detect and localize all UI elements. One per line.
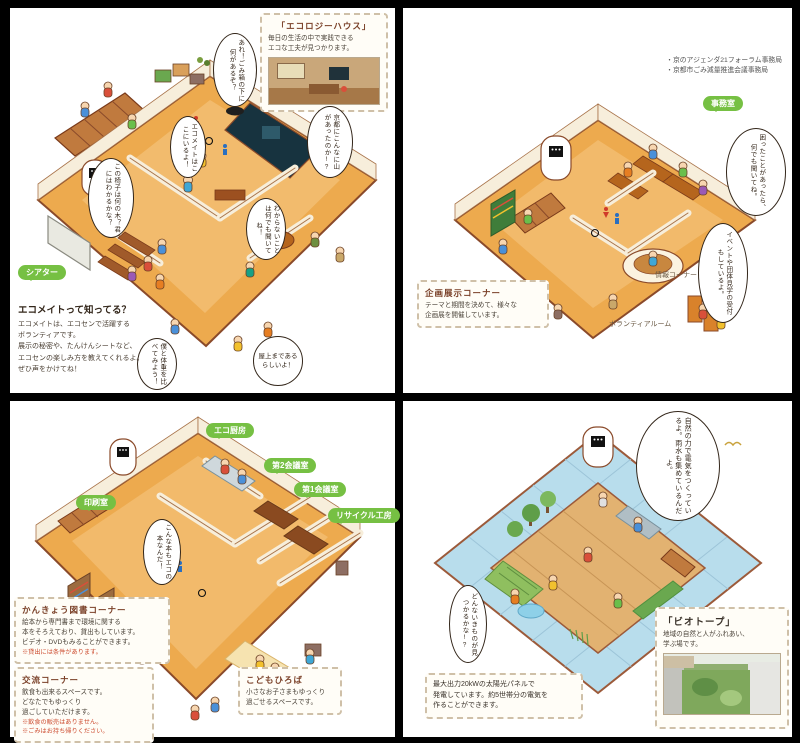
bubble-ecomate-here: エコメイトはここにいるよ！: [170, 116, 206, 178]
solar-panel-line: 作ることができます。: [433, 701, 575, 712]
bubble-creatures: どんないきものが見つかるかな!?: [449, 585, 487, 663]
elevator-icon: [583, 427, 613, 467]
bubble-trash: あれ！ごみ箱の下に何があるぞ？: [213, 33, 257, 107]
office-line: ・京のアジェンダ21フォーラム事務局: [666, 56, 782, 66]
bubble-kyoto: 京都にこんなに山があったのか!?: [307, 106, 353, 178]
office-line: ・京都市ごみ減量推進会議事務局: [666, 66, 782, 76]
biotope-box: 「ビオトープ」 地域の自然と人がふれあい、 学ぶ場です。: [655, 607, 789, 729]
elevator-icon: [541, 136, 571, 180]
eco-house-line: 毎日の生活の中で実践できる: [268, 34, 380, 44]
label-meeting-room-1: 第1会議室: [294, 482, 346, 497]
bubble-nature-power: 自然の力で電気をつくっているよ。雨水も集めているんだよ。: [636, 411, 720, 521]
solar-panel-line: 最大出力20kWの太陽光パネルで: [433, 680, 575, 691]
exhibit-corner-title: 企画展示コーナー: [425, 287, 541, 299]
ecomate-note-title: エコメイトって知ってる？: [18, 302, 193, 316]
bubble-rooftop: 屋上まであるらしいよ！: [253, 336, 303, 386]
ecomate-note-line: ぜひ声をかけてね！: [18, 364, 193, 375]
label-office: 事務室: [703, 96, 743, 111]
exchange-corner-line: 飲食も出来るスペースです。: [22, 688, 146, 698]
label-print-room: 印刷室: [76, 495, 116, 510]
library-corner-note: ※貸出には条件があります。: [22, 648, 162, 657]
bubble-eco-book: こんな本もエコの本なんだ！: [143, 519, 181, 585]
label-meeting-room-2: 第2会議室: [264, 458, 316, 473]
ecomate-note-line: エコメイトは、エコセンで活躍する: [18, 319, 193, 330]
exchange-corner-note: ※飲食の販売はありません。: [22, 718, 146, 727]
label-eco-kitchen: エコ厨房: [206, 423, 254, 438]
library-corner-box: かんきょう図書コーナー 絵本から専門書まで環境に関する 本をそろえており、貸出も…: [14, 597, 170, 664]
elevator-icon: [110, 439, 136, 475]
biotope-line: 地域の自然と人がふれあい、: [663, 630, 781, 640]
tire-exhibit: [226, 107, 244, 116]
biotope-photo: [663, 653, 781, 715]
office-listing: ・京のアジェンダ21フォーラム事務局 ・京都市ごみ減量推進会議事務局: [666, 56, 782, 76]
exchange-corner-line: どなたでもゆっくり: [22, 698, 146, 708]
label-info-corner: 情報コーナー: [655, 270, 697, 280]
library-corner-line: 絵本から専門書まで環境に関する: [22, 618, 162, 628]
ecomate-note: エコメイトって知ってる？ エコメイトは、エコセンで活躍する ボランティアです。 …: [18, 302, 193, 375]
exchange-corner-note: ※ごみはお持ち帰りください。: [22, 727, 146, 736]
exhibit-corner-line: テーマと期間を決めて、様々な: [425, 301, 541, 311]
solar-panel-box: 最大出力20kWの太陽光パネルで 発電しています。約5世帯分の電気を 作ることが…: [425, 673, 583, 719]
bird-icon: [725, 443, 741, 446]
eco-house-title: 「エコロジーハウス」: [268, 20, 380, 32]
ecomate-note-line: エコセンの楽しみ方を教えてくれるよ。: [18, 353, 193, 364]
bubble-chair: この椅子は何の木？君にはわかるかな？: [88, 158, 134, 238]
bubble-trouble: 困ったことがあったら、何でも聞いてね。: [726, 128, 786, 216]
bubble-events: イベントや団体見学の受付もしているよ。: [698, 223, 748, 323]
panel-floor3: エコ厨房 第2会議室 第1会議室 リサイクル工房 印刷室 こんな本もエコの本なん…: [10, 401, 395, 737]
library-corner-title: かんきょう図書コーナー: [22, 604, 162, 616]
biotope-pond: [518, 604, 544, 618]
eco-center-floor-guide: { "colors": { "label_green": "#76c043", …: [0, 0, 800, 743]
eco-house-info-box: 「エコロジーハウス」 毎日の生活の中で実践できる エコな工夫が見つかります。: [260, 13, 388, 112]
bubble-ask-anything: わからないことは何でも聞いてね！: [246, 198, 286, 260]
biotope-line: 学ぶ場です。: [663, 640, 781, 650]
eco-house-photo: [268, 57, 380, 105]
kids-plaza-box: こどもひろば 小さなお子さまもゆっくり 過ごせるスペースです。: [238, 667, 342, 715]
ecomate-note-line: 展示の秘密や、たんけんシートなど、: [18, 341, 193, 352]
biotope-title: 「ビオトープ」: [663, 614, 781, 628]
eco-house-line: エコな工夫が見つかります。: [268, 44, 380, 54]
panel-floor1: 「エコロジーハウス」 毎日の生活の中で実践できる エコな工夫が見つかります。 あ…: [10, 8, 395, 393]
exchange-corner-line: 過ごしていただけます。: [22, 708, 146, 718]
panel-rooftop: 自然の力で電気をつくっているよ。雨水も集めているんだよ。 どんないきものが見つか…: [403, 401, 792, 737]
label-recycle-workshop: リサイクル工房: [328, 508, 400, 523]
label-volunteer-room: ボランティアルーム: [609, 319, 671, 329]
ecomate-note-line: ボランティアです。: [18, 330, 193, 341]
panel-floor2: ・京のアジェンダ21フォーラム事務局 ・京都市ごみ減量推進会議事務局 事務室 困…: [403, 8, 792, 393]
exhibit-corner-line: 企画展を開催しています。: [425, 311, 541, 321]
kids-plaza-line: 小さなお子さまもゆっくり: [246, 688, 334, 698]
library-corner-line: 本をそろえており、貸出もしています。: [22, 628, 162, 638]
kids-plaza-line: 過ごせるスペースです。: [246, 698, 334, 708]
exchange-corner-title: 交流コーナー: [22, 674, 146, 686]
solar-panel-line: 発電しています。約5世帯分の電気を: [433, 691, 575, 702]
library-corner-line: ビデオ・DVDもみることができます。: [22, 638, 162, 648]
exhibit-corner-box: 企画展示コーナー テーマと期間を決めて、様々な 企画展を開催しています。: [417, 280, 549, 328]
label-theater: シアター: [18, 265, 66, 280]
kids-plaza-title: こどもひろば: [246, 674, 334, 686]
exchange-corner-box: 交流コーナー 飲食も出来るスペースです。 どなたでもゆっくり 過ごしていただけま…: [14, 667, 154, 743]
